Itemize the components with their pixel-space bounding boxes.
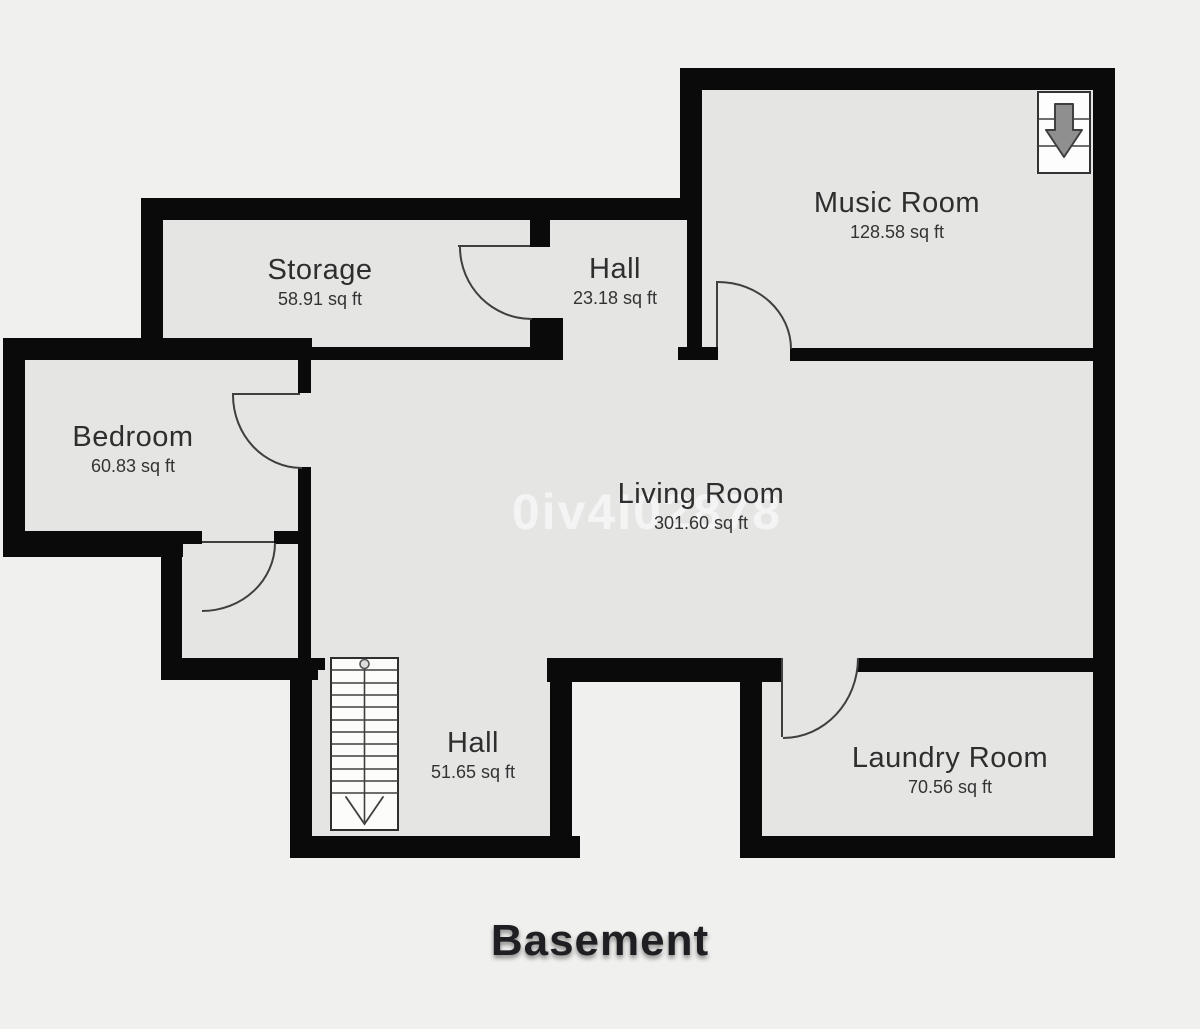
door-leaf-music-room	[716, 281, 718, 347]
wall	[183, 531, 202, 544]
wall	[274, 531, 311, 544]
wall	[298, 358, 311, 393]
room-name: Bedroom	[72, 420, 193, 454]
door-leaf-laundry	[781, 658, 783, 737]
wall	[680, 68, 1115, 90]
floor-title: Basement	[491, 916, 709, 966]
room-area: 70.56 sq ft	[852, 775, 1048, 799]
room-label-music-room: Music Room 128.58 sq ft	[814, 186, 980, 244]
room-area: 60.83 sq ft	[72, 454, 193, 478]
room-area: 58.91 sq ft	[267, 287, 372, 311]
floorplan-basement: 0iv4I02878 Storage 58.91 sq ft Hall 23.1…	[0, 0, 1200, 1029]
room-name: Hall	[431, 726, 515, 760]
wall	[290, 836, 580, 858]
room-name: Hall	[573, 252, 657, 286]
room-label-storage: Storage 58.91 sq ft	[267, 253, 372, 311]
room-name: Music Room	[814, 186, 980, 220]
wall	[678, 347, 718, 360]
wall	[550, 682, 572, 858]
wall	[762, 658, 783, 672]
room-area: 301.60 sq ft	[618, 511, 785, 535]
door-leaf-bedroom	[232, 393, 300, 395]
room-label-bedroom: Bedroom 60.83 sq ft	[72, 420, 193, 478]
room-name: Storage	[267, 253, 372, 287]
room-label-living-room: Living Room 301.60 sq ft	[618, 477, 785, 535]
room-label-hall-upper: Hall 23.18 sq ft	[573, 252, 657, 310]
wall	[141, 347, 563, 360]
room-label-hall-lower: Hall 51.65 sq ft	[431, 726, 515, 784]
wall	[141, 198, 702, 220]
room-area: 51.65 sq ft	[431, 760, 515, 784]
wall	[290, 658, 312, 858]
wall	[740, 658, 762, 858]
wall	[857, 658, 1093, 672]
room-area: 23.18 sq ft	[573, 286, 657, 310]
wall	[298, 467, 311, 658]
room-area: 128.58 sq ft	[814, 220, 980, 244]
room-label-laundry-room: Laundry Room 70.56 sq ft	[852, 741, 1048, 799]
wall	[141, 198, 163, 360]
room-name: Living Room	[618, 477, 785, 511]
wall	[310, 658, 325, 670]
wall	[790, 348, 1093, 361]
wall	[530, 220, 550, 247]
wall	[3, 338, 25, 557]
door-leaf-closet	[202, 541, 274, 543]
room-name: Laundry Room	[852, 741, 1048, 775]
wall	[3, 531, 183, 557]
wall	[740, 836, 1115, 858]
wall	[687, 220, 702, 347]
wall	[1093, 68, 1115, 858]
door-leaf-storage-hall	[458, 245, 530, 247]
